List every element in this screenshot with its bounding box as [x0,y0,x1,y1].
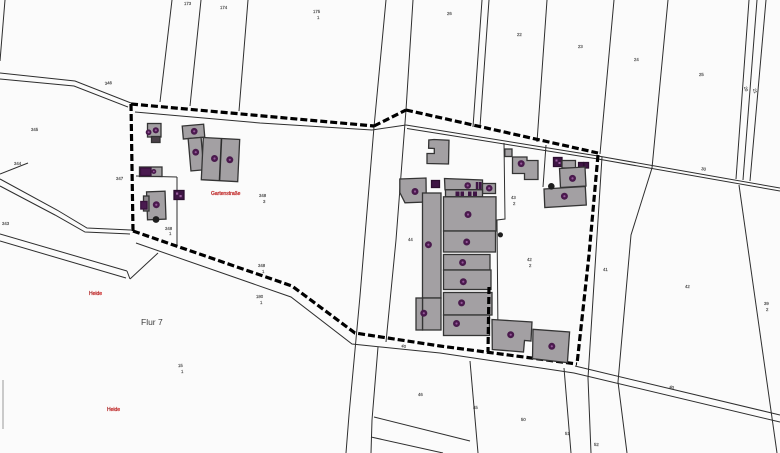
svg-text:347: 347 [116,176,124,181]
svg-text:50: 50 [521,417,526,422]
svg-text:46: 46 [418,392,423,397]
svg-text:174: 174 [220,5,228,10]
svg-text:348: 348 [258,263,266,268]
svg-text:43: 43 [511,195,516,200]
svg-text:343: 343 [2,221,10,226]
svg-text:42: 42 [527,257,532,262]
svg-text:Gartenstraße: Gartenstraße [211,191,241,197]
svg-text:173: 173 [184,1,192,6]
svg-text:Heide: Heide [107,407,120,413]
svg-text:15: 15 [178,363,183,368]
svg-text:45: 45 [473,405,478,410]
svg-text:51: 51 [565,431,570,436]
svg-text:25: 25 [699,72,704,77]
svg-text:52: 52 [594,442,599,447]
svg-text:348: 348 [259,193,267,198]
svg-text:24: 24 [634,57,639,62]
svg-text:22: 22 [517,32,522,37]
svg-text:175: 175 [313,9,321,14]
svg-text:344: 344 [14,161,22,166]
svg-text:42: 42 [685,284,690,289]
svg-text:180: 180 [256,294,264,299]
svg-text:23: 23 [578,44,583,49]
svg-text:44: 44 [408,237,413,242]
svg-text:41: 41 [603,267,608,272]
svg-text:Flur 7: Flur 7 [141,317,163,327]
svg-text:345: 345 [31,127,39,132]
svg-text:39: 39 [764,301,769,306]
svg-text:Heide: Heide [89,291,102,297]
svg-text:26: 26 [447,11,452,16]
